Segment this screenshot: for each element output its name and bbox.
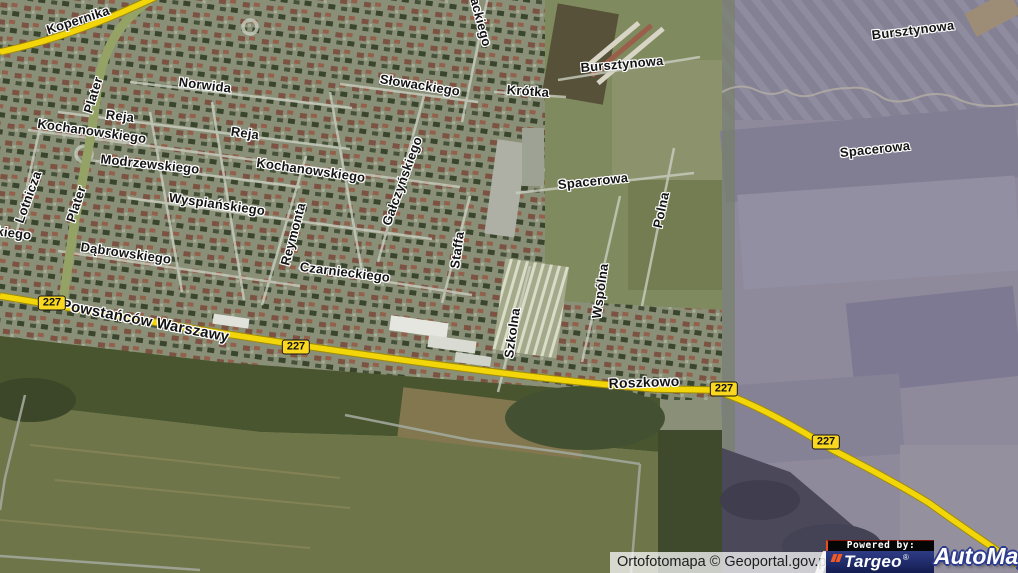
road-number-badge: 227 [812, 435, 840, 450]
street-label: Czarnieckiego [299, 260, 391, 284]
street-label: Wspólna [590, 263, 611, 320]
street-label: Spacerowa [557, 171, 628, 191]
street-label: Wyspiańskiego [168, 191, 266, 217]
street-label: Lotnicza [13, 169, 44, 224]
targeo-logo[interactable]: Targeo ® [826, 551, 934, 573]
street-label: Spacerowa [839, 139, 910, 159]
road-number-badge: 227 [710, 382, 738, 397]
street-label: Krótka [506, 83, 549, 99]
label-layer: KopernikaNorwidaRejaKochanowskiegoRejaKo… [0, 0, 1018, 573]
map-viewport[interactable]: KopernikaNorwidaRejaKochanowskiegoRejaKo… [0, 0, 1018, 573]
street-label: Norwida [178, 75, 232, 94]
street-label: Bursztynowa [580, 54, 664, 74]
street-label: Dąbrowskiego [80, 240, 172, 266]
street-label: Staffa [448, 231, 466, 270]
road-label: Roszkowo [608, 374, 679, 390]
street-label: kiego [0, 224, 32, 241]
street-label: Reymonta [278, 201, 307, 267]
road-number-badge: 227 [282, 340, 310, 355]
street-label: Gałczyńskiego [380, 135, 424, 227]
automapa-logo-text: AutoMapa [934, 543, 1018, 569]
street-label: Kopernika [45, 4, 111, 37]
street-label: Polna [651, 191, 671, 229]
street-label: Reja [105, 108, 135, 124]
street-label: Słowackiego [379, 72, 461, 98]
targeo-logo-text: Targeo [844, 552, 902, 572]
automapa-logo[interactable]: AutoMapa® [934, 543, 1018, 570]
street-label: Plater [64, 184, 88, 224]
street-label: Modrzewskiego [100, 152, 200, 175]
street-label: Plater [81, 75, 104, 115]
attribution-text: Ortofotomapa © Geoportal.gov.pl [617, 554, 830, 570]
street-label: Bursztynowa [871, 18, 955, 41]
street-label: Kochanowskiego [256, 156, 366, 184]
attribution-bar: Ortofotomapa © Geoportal.gov.pl [610, 552, 837, 573]
targeo-registered-mark: ® [903, 553, 909, 562]
street-label: ackiego [468, 0, 493, 48]
road-number-badge: 227 [38, 296, 66, 311]
street-label: Szkolna [502, 307, 522, 359]
street-label: Reja [230, 125, 260, 142]
road-label: Powstańców Warszawy [60, 297, 231, 344]
targeo-quote-icon [832, 554, 842, 562]
